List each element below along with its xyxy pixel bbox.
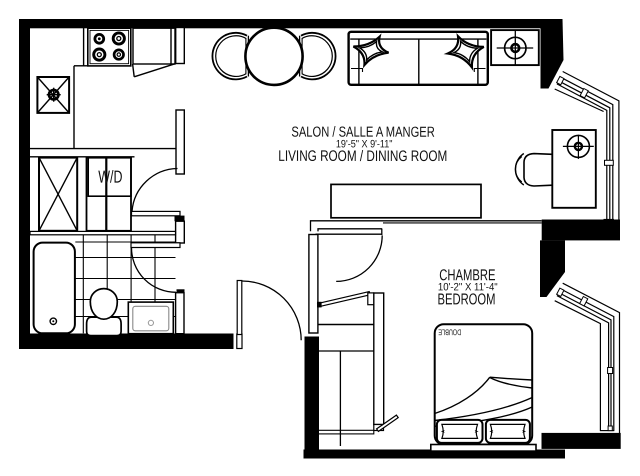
svg-text:DOUBLE: DOUBLE xyxy=(438,328,461,337)
svg-text:BEDROOM: BEDROOM xyxy=(437,291,495,308)
svg-text:LIVING ROOM / DINING ROOM: LIVING ROOM / DINING ROOM xyxy=(278,148,447,165)
svg-text:W/D: W/D xyxy=(98,167,122,187)
